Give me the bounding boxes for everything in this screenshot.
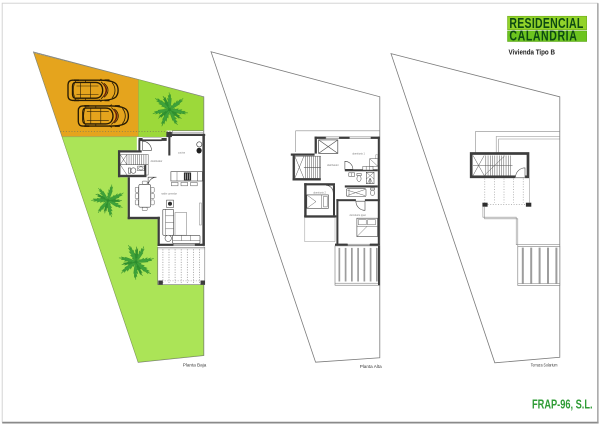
svg-text:distribuidor: distribuidor [151, 160, 163, 163]
svg-text:FRAP-96, S.L.: FRAP-96, S.L. [532, 398, 593, 412]
svg-text:dormitorio ppal.: dormitorio ppal. [350, 214, 367, 217]
svg-text:distribuidor: distribuidor [327, 164, 339, 167]
svg-text:Planta Alta: Planta Alta [360, 364, 382, 369]
svg-text:dormitorio 2: dormitorio 2 [313, 191, 326, 194]
svg-text:Terraza Solarium: Terraza Solarium [531, 362, 558, 367]
svg-text:CALANDRIA: CALANDRIA [509, 27, 577, 44]
svg-text:cocina: cocina [178, 152, 186, 155]
svg-text:Planta Baja: Planta Baja [183, 362, 207, 367]
svg-text:salón comedor: salón comedor [161, 192, 177, 195]
svg-text:dormitorio 1: dormitorio 1 [352, 153, 365, 156]
svg-text:Vivienda Tipo B: Vivienda Tipo B [509, 49, 555, 57]
